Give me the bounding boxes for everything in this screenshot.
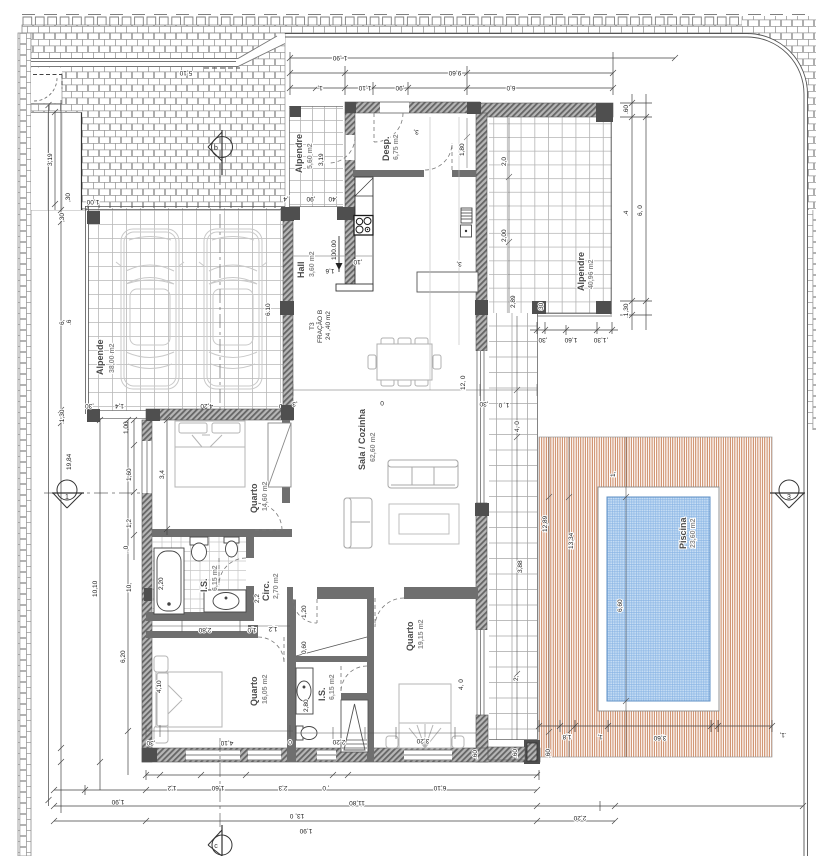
svg-text:Quarto: Quarto	[249, 676, 259, 706]
svg-text:2,80: 2,80	[198, 626, 211, 633]
svg-text:3,4: 3,4	[159, 470, 166, 479]
svg-text:6,15 m2: 6,15 m2	[329, 674, 336, 700]
svg-text:c: c	[214, 843, 218, 850]
svg-text:1,60: 1,60	[564, 336, 577, 343]
svg-text:1: 1	[65, 494, 69, 501]
svg-text:.1,: .1,	[779, 731, 786, 738]
svg-text:.6: .6	[66, 319, 73, 325]
svg-text:3,60 m2: 3,60 m2	[309, 251, 316, 277]
svg-text:I.S.: I.S.	[199, 578, 209, 592]
svg-text:12, 0: 12, 0	[460, 375, 467, 390]
svg-text:6,15 m2: 6,15 m2	[212, 565, 219, 591]
svg-text:30: 30	[538, 302, 545, 310]
svg-text:1,00: 1,00	[86, 198, 99, 205]
svg-text:,30: ,30	[59, 213, 66, 222]
svg-text:2,2: 2,2	[254, 594, 261, 603]
svg-text:.60: .60	[472, 750, 479, 759]
svg-text:3: 3	[787, 494, 791, 501]
svg-text:1,90: 1,90	[111, 798, 124, 805]
svg-text:12,89: 12,89	[542, 515, 549, 532]
svg-text:62,60 m2: 62,60 m2	[370, 432, 377, 462]
svg-text:FRAÇÃO B: FRAÇÃO B	[315, 310, 324, 343]
svg-text:1, 0: 1, 0	[498, 401, 509, 408]
svg-text:19,84: 19,84	[66, 453, 73, 470]
svg-text:5,10: 5,10	[179, 69, 192, 76]
svg-text:6,60: 6,60	[617, 599, 624, 612]
svg-text:Piscina: Piscina	[678, 516, 688, 549]
svg-text:4, 0: 4, 0	[514, 421, 521, 432]
svg-text:, 0: , 0	[322, 784, 330, 791]
svg-text:1,60: 1,60	[211, 784, 224, 791]
svg-text:2,80: 2,80	[303, 699, 310, 712]
svg-text:Alpendre: Alpendre	[294, 134, 304, 173]
svg-text:23,60 m2: 23,60 m2	[690, 518, 697, 548]
svg-text:1,2: 1,2	[268, 625, 277, 632]
svg-text:,90: ,90	[395, 84, 404, 91]
svg-text:.4: .4	[623, 210, 630, 216]
svg-text:Alpendre: Alpendre	[576, 252, 586, 291]
svg-text:1,8: 1,8	[562, 733, 571, 740]
svg-text:1,90: 1,90	[299, 827, 312, 834]
svg-text:Hall: Hall	[296, 261, 306, 278]
svg-text:2,20: 2,20	[158, 577, 165, 590]
svg-text:1,2: 1,2	[167, 784, 176, 791]
svg-text:.1,30: .1,30	[59, 409, 66, 424]
svg-text:0,60: 0,60	[301, 641, 308, 654]
svg-text:2,0: 2,0	[501, 157, 508, 166]
svg-text:4,20: 4,20	[200, 402, 213, 409]
svg-text:0: 0	[380, 399, 384, 406]
svg-text:,10: ,10	[353, 258, 362, 265]
svg-text:1,20: 1,20	[301, 605, 308, 618]
svg-text:Quarto: Quarto	[249, 483, 259, 513]
svg-text:24 ,40 m2: 24 ,40 m2	[325, 311, 332, 340]
svg-text:14,60 m2: 14,60 m2	[262, 481, 269, 511]
svg-text:,90: ,90	[306, 195, 315, 202]
svg-text:6,: 6,	[59, 319, 66, 325]
svg-text:10,10: 10,10	[92, 580, 99, 597]
svg-text:Circ.: Circ.	[261, 581, 271, 601]
svg-text:,60: ,60	[545, 749, 552, 758]
svg-text:b: b	[214, 145, 218, 152]
svg-text:3,19: 3,19	[318, 153, 325, 166]
svg-text:,30: ,30	[479, 400, 488, 407]
svg-text:11,80: 11,80	[349, 799, 365, 806]
svg-text:16,05 m2: 16,05 m2	[262, 674, 269, 704]
svg-text:.1,30: .1,30	[623, 303, 630, 318]
svg-text:3,19: 3,19	[47, 153, 54, 166]
svg-text:1,00: 1,00	[123, 421, 130, 434]
svg-text:9,60: 9,60	[448, 69, 461, 76]
svg-text:1,10: 1,10	[358, 84, 371, 91]
svg-text:6,75 m2: 6,75 m2	[393, 134, 400, 160]
svg-text:,4: ,4	[283, 195, 289, 202]
svg-text:T3: T3	[309, 322, 316, 330]
svg-text:3,20: 3,20	[416, 737, 429, 744]
svg-text:1,: 1,	[597, 733, 603, 740]
svg-text:6,10: 6,10	[433, 784, 446, 791]
svg-text:5,60 m2: 5,60 m2	[307, 143, 314, 169]
svg-text:4,10: 4,10	[156, 680, 163, 693]
svg-text:Sala / Cozinha: Sala / Cozinha	[357, 408, 367, 470]
svg-text:,30: ,30	[65, 193, 72, 202]
svg-text:6, 0: 6, 0	[637, 205, 644, 216]
svg-text:40,96 m2: 40,96 m2	[588, 259, 595, 289]
svg-text:13,34: 13,34	[568, 532, 575, 549]
svg-text:1,: 1,	[317, 84, 323, 91]
svg-text:2,89: 2,89	[510, 295, 517, 308]
svg-text:,40: ,40	[328, 195, 337, 202]
svg-text:2,: 2,	[513, 675, 520, 681]
svg-text:10,: 10,	[126, 583, 133, 592]
svg-text:2,3: 2,3	[278, 784, 287, 791]
svg-text:,30: ,30	[85, 402, 94, 409]
svg-text:1 ,90: 1 ,90	[332, 54, 347, 61]
svg-text:, 0: , 0	[123, 545, 130, 553]
svg-text:I.S.: I.S.	[317, 687, 327, 701]
svg-text:,30: ,30	[538, 336, 547, 343]
svg-text:19,15 m2: 19,15 m2	[418, 619, 425, 649]
svg-text:4, 0: 4, 0	[458, 679, 465, 690]
svg-text:Alpende: Alpende	[95, 339, 105, 375]
svg-text:2,20: 2,20	[573, 814, 586, 821]
svg-text:100.00: 100.00	[331, 240, 338, 260]
svg-text:2,20: 2,20	[332, 738, 345, 745]
svg-text:,30: ,30	[146, 739, 155, 746]
svg-text:3,: 3,	[413, 128, 419, 135]
svg-text:,1,30: ,1,30	[593, 336, 608, 343]
svg-text:Desp.: Desp.	[381, 136, 391, 161]
svg-text:4,10: 4,10	[220, 739, 233, 746]
svg-text:1,80: 1,80	[459, 143, 466, 156]
svg-text:1,60: 1,60	[126, 468, 133, 481]
svg-text:1,4: 1,4	[115, 402, 124, 409]
svg-text:2,00: 2,00	[501, 229, 508, 242]
svg-text:1,2: 1,2	[126, 519, 133, 528]
svg-text:0: 0	[288, 738, 292, 745]
svg-text:6,20: 6,20	[120, 650, 127, 663]
svg-text:1,: 1,	[610, 471, 617, 477]
svg-text:3,: 3,	[456, 260, 462, 267]
svg-text:38,00 m2: 38,00 m2	[109, 343, 116, 373]
svg-text:.60: .60	[512, 749, 519, 758]
svg-text:.60: .60	[623, 105, 630, 114]
svg-text:2,70 m2: 2,70 m2	[273, 573, 280, 599]
svg-text:Quarto: Quarto	[405, 621, 415, 651]
svg-text:6.10: 6.10	[265, 303, 272, 316]
svg-text:3,60: 3,60	[653, 734, 666, 741]
svg-text:1,6: 1,6	[325, 267, 334, 274]
svg-text:6,0: 6,0	[506, 84, 515, 91]
svg-text:13, 0: 13, 0	[289, 812, 304, 819]
svg-text:1,0: 1,0	[247, 626, 256, 633]
svg-text:3,88: 3,88	[517, 560, 524, 573]
svg-text:,3: ,3	[292, 400, 298, 407]
